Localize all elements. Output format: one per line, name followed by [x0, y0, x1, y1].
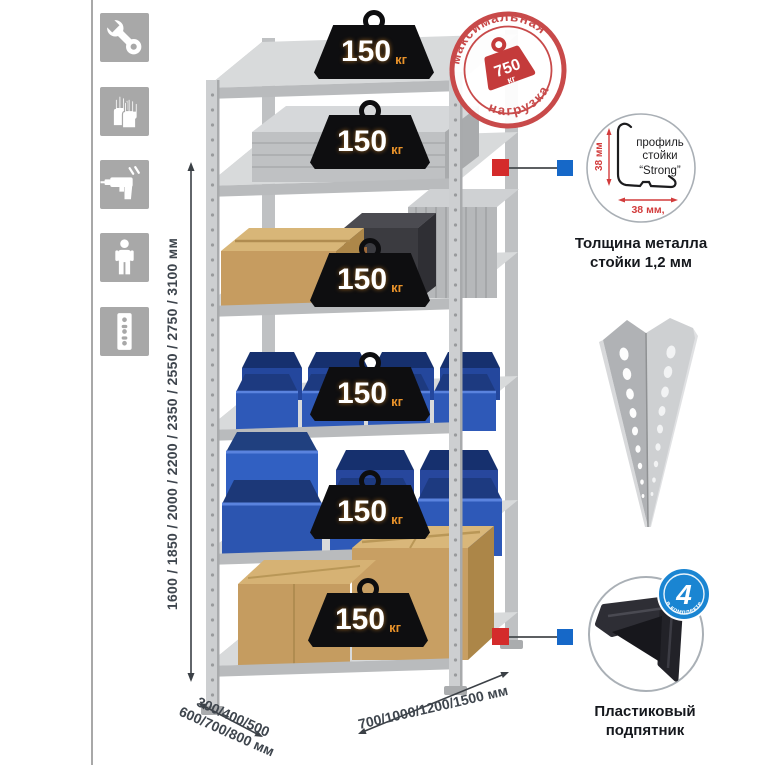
load-unit: кг — [391, 512, 403, 527]
load-value: 150 — [337, 265, 387, 295]
profile-caption-line1: Толщина металла — [551, 235, 731, 254]
shelf-load-weight-6: 150кг — [308, 578, 428, 650]
connector-red-marker — [492, 628, 509, 645]
angle-post-image — [595, 312, 705, 537]
profile-callout-connector — [492, 159, 573, 176]
profile-label-line2: стойки — [642, 150, 677, 162]
foot-callout-connector — [492, 628, 573, 645]
load-value: 150 — [337, 497, 387, 527]
quantity-badge: 4 в комплекте — [656, 566, 712, 622]
profile-label-line1: профиль — [636, 137, 684, 149]
connector-blue-marker — [557, 629, 573, 645]
height-dimension-label: 1600 / 1850 / 2000 / 2200 / 2350 / 2550 … — [164, 238, 180, 610]
shelf-load-weight-1: 150кг — [314, 10, 434, 82]
load-value: 150 — [341, 37, 391, 67]
load-unit: кг — [389, 620, 401, 635]
badge-count: 4 — [675, 579, 692, 610]
load-unit: кг — [391, 280, 403, 295]
load-value: 150 — [337, 127, 387, 157]
connector-blue-marker — [557, 160, 573, 176]
shelf-load-weight-5: 150кг — [310, 470, 430, 542]
connector-red-marker — [492, 159, 509, 176]
load-unit: кг — [391, 394, 403, 409]
profile-label-line3: “Strong” — [639, 165, 681, 177]
profile-dim-vertical-label: 38 мм — [594, 142, 605, 171]
load-value: 150 — [335, 605, 385, 635]
profile-text-labels: профиль стойки “Strong” — [636, 137, 684, 177]
height-dimension-line — [188, 162, 195, 682]
product-infographic: 1600 / 1850 / 2000 / 2200 / 2350 / 2550 … — [0, 0, 765, 765]
foot-caption-line2: подпятник — [555, 722, 735, 741]
post-profile-detail: 38 мм 38 мм, профиль стойки “Strong” — [585, 112, 697, 224]
load-unit: кг — [395, 52, 407, 67]
foot-caption: Пластиковый подпятник — [555, 703, 735, 741]
shelf-load-weight-3: 150кг — [310, 238, 430, 310]
foot-caption-line1: Пластиковый — [555, 703, 735, 722]
load-unit: кг — [391, 142, 403, 157]
profile-caption-line2: стойки 1,2 мм — [551, 254, 731, 273]
shelf-load-weight-2: 150кг — [310, 100, 430, 172]
load-value: 150 — [337, 379, 387, 409]
profile-dim-horizontal-label: 38 мм, — [631, 204, 664, 216]
profile-caption: Толщина металла стойки 1,2 мм — [551, 235, 731, 273]
shelf-load-weight-4: 150кг — [310, 352, 430, 424]
max-load-stamp: максимальная нагрузка 750 кг — [444, 6, 572, 134]
